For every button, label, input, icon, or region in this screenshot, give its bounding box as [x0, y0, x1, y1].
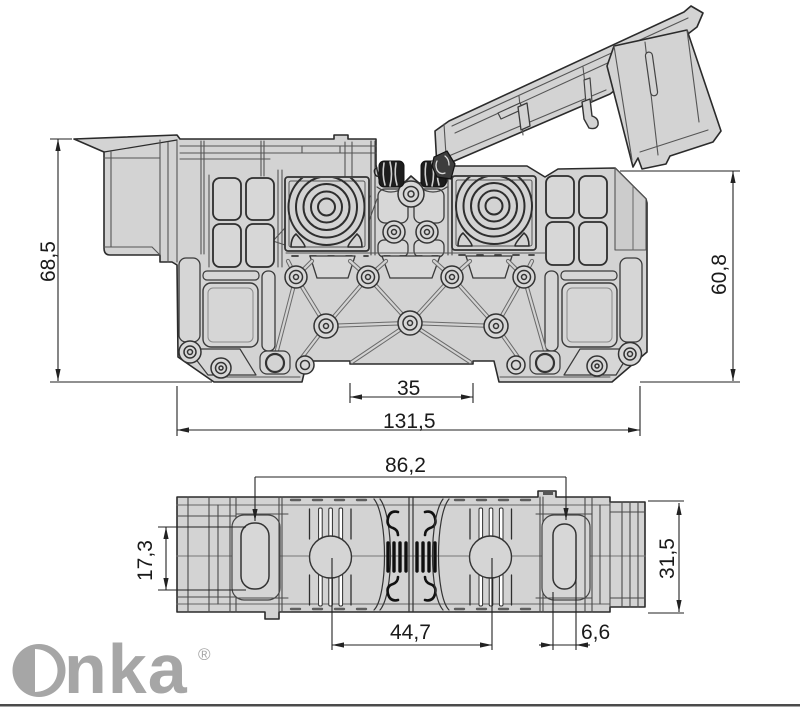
svg-text:®: ®: [198, 645, 211, 664]
svg-text:86,2: 86,2: [385, 454, 426, 477]
svg-text:35: 35: [397, 377, 420, 400]
svg-text:nka: nka: [64, 630, 188, 708]
svg-text:17,3: 17,3: [134, 540, 157, 581]
svg-text:6,6: 6,6: [581, 621, 610, 644]
svg-text:31,5: 31,5: [656, 538, 679, 579]
svg-text:131,5: 131,5: [383, 410, 436, 433]
svg-text:68,5: 68,5: [37, 241, 60, 282]
svg-text:44,7: 44,7: [390, 621, 431, 644]
svg-text:60,8: 60,8: [708, 254, 731, 295]
